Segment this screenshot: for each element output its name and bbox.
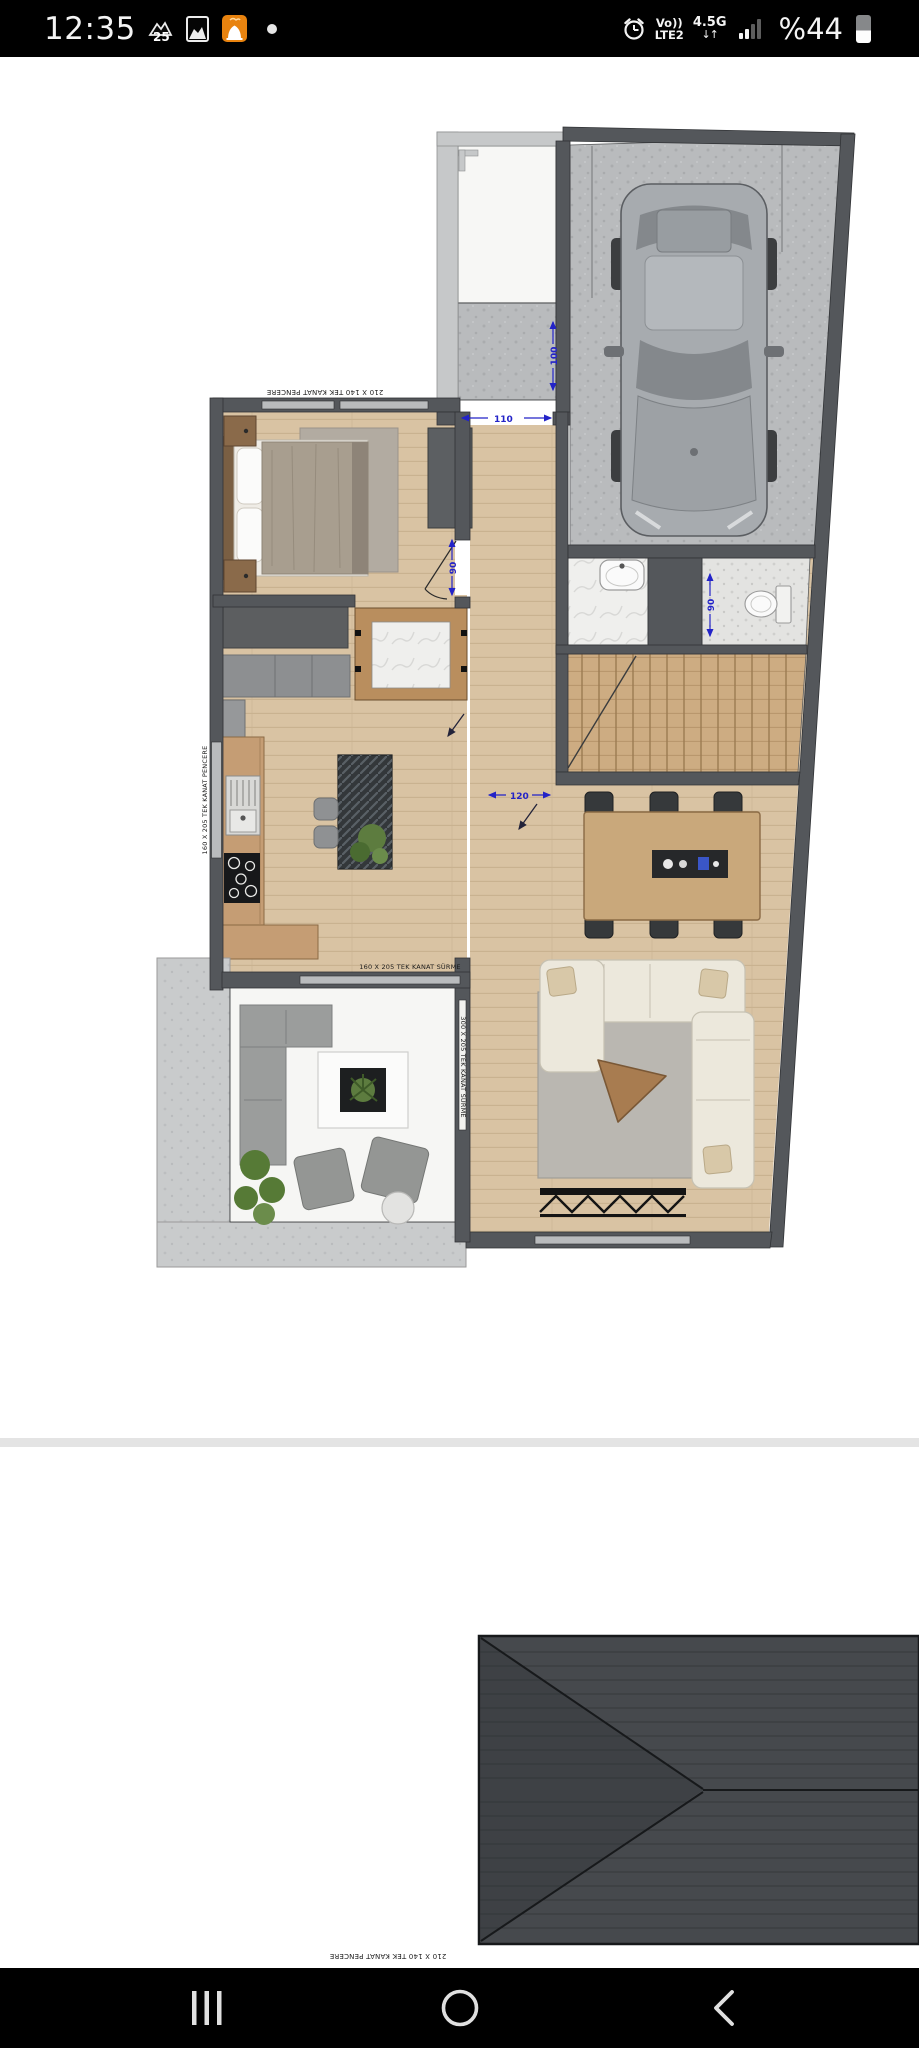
- dim-wc-door: 90: [707, 599, 717, 612]
- battery-percent: %44: [779, 12, 843, 46]
- bathroom-sink: [600, 560, 644, 590]
- wardrobe: [223, 603, 348, 648]
- signal-strength-icon: [739, 19, 761, 39]
- screenshot-notification-icon: 25: [147, 14, 174, 43]
- gallery-scroll-view[interactable]: 110 100 90 90 120 210 X 140 TEK KANAT PE…: [0, 0, 919, 2048]
- recents-icon: [187, 1989, 227, 2027]
- nightstand: [224, 416, 256, 446]
- kitchen-sink: [226, 776, 260, 835]
- dim-entry-width: 110: [494, 415, 513, 425]
- cabinet-row: [222, 655, 350, 697]
- terrace: [157, 958, 466, 1267]
- cooktop: [224, 853, 260, 903]
- label-bedroom-window: 210 X 140 TEK KANAT PENCERE: [267, 388, 384, 396]
- network-type-indicator: 4.5G ↓↑: [693, 17, 727, 41]
- alarm-clock-icon: [622, 16, 646, 42]
- label-terrace-slider-right: 300 X 205 TEK KANAT SÜRME: [459, 1016, 468, 1117]
- label-kitchen-window: 160 X 205 TEK KANAT PENCERE: [201, 746, 209, 855]
- volte-indicator: Vo)) LTE2: [655, 17, 684, 41]
- label-terrace-slider-top: 160 X 205 TEK KANAT SÜRME: [359, 962, 460, 971]
- island-stool: [314, 798, 338, 820]
- nightstand: [224, 560, 256, 592]
- dim-bedroom-door: 90: [449, 562, 459, 575]
- bed: [222, 436, 368, 580]
- mosque-app-notification-icon: [221, 14, 248, 43]
- dim-pad-depth: 100: [550, 347, 560, 366]
- image-divider: [0, 1438, 919, 1447]
- label-roof-window: 210 X 140 TEK KANAT PENCERE: [330, 1952, 447, 1960]
- entry-concrete-pad: [458, 303, 556, 400]
- roof-plan-image[interactable]: 210 X 140 TEK KANAT PENCERE: [330, 1636, 919, 1960]
- dim-kitchen-opening: 120: [510, 792, 529, 802]
- staircase: [565, 654, 806, 772]
- floor-plan-image[interactable]: 110 100 90 90 120 210 X 140 TEK KANAT PE…: [157, 127, 855, 1267]
- home-button[interactable]: [415, 1968, 505, 2048]
- status-bar: 12:35 25: [0, 0, 919, 57]
- kitchen-island: [338, 755, 392, 869]
- ensuite-bathroom: [355, 608, 467, 700]
- dining-set: [584, 792, 760, 938]
- back-icon: [708, 1988, 738, 2028]
- home-icon: [439, 1987, 481, 2029]
- car: [604, 184, 784, 536]
- gallery-notification-icon: [185, 15, 210, 43]
- battery-icon: [856, 15, 871, 43]
- clock-time: 12:35: [44, 11, 136, 47]
- island-stool: [314, 826, 338, 848]
- entry-courtyard: [458, 146, 556, 303]
- back-button[interactable]: [678, 1968, 768, 2048]
- notification-dot-icon: [267, 24, 277, 34]
- recents-button[interactable]: [162, 1968, 252, 2048]
- android-navigation-bar: [0, 1968, 919, 2048]
- svg-text:25: 25: [153, 30, 170, 43]
